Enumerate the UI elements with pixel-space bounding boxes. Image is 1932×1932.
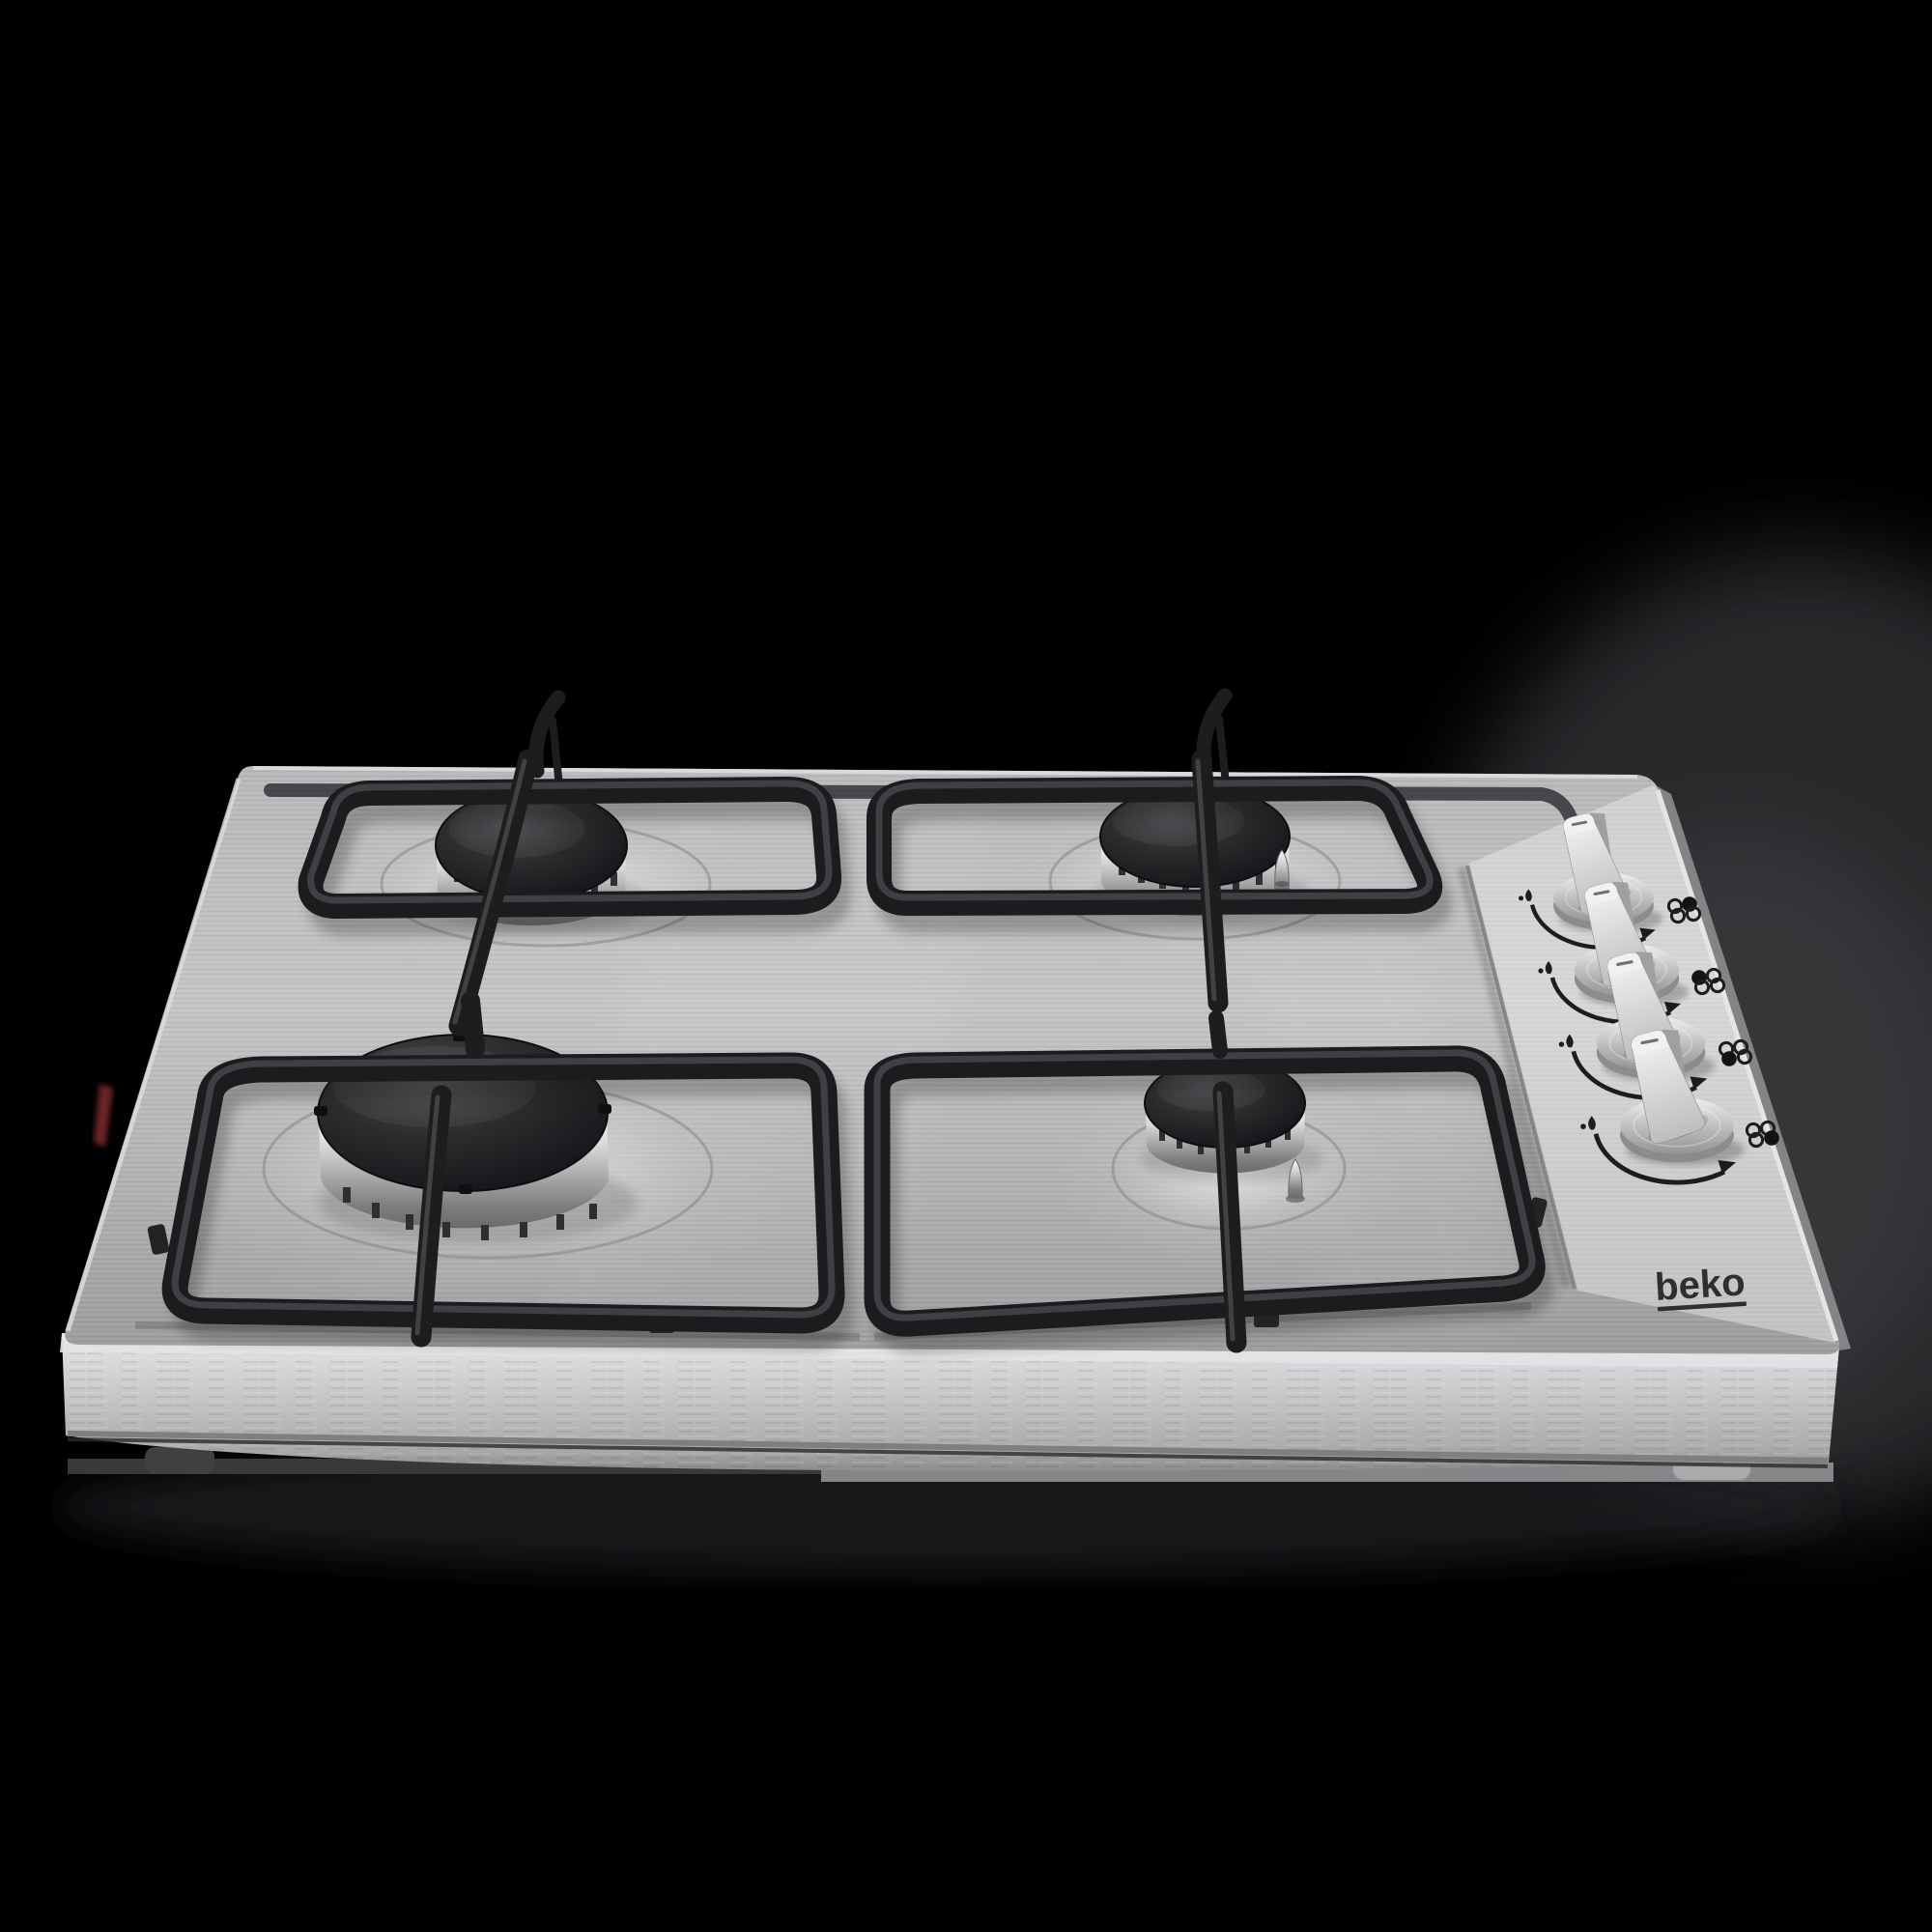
foot-left [145, 1447, 214, 1474]
gas-hob-product-image: beko [0, 0, 1932, 1932]
brand-logo: beko [1654, 1261, 1747, 1311]
product-photo-stage: beko [0, 0, 1932, 1932]
brand-logo-text: beko [1654, 1261, 1747, 1309]
